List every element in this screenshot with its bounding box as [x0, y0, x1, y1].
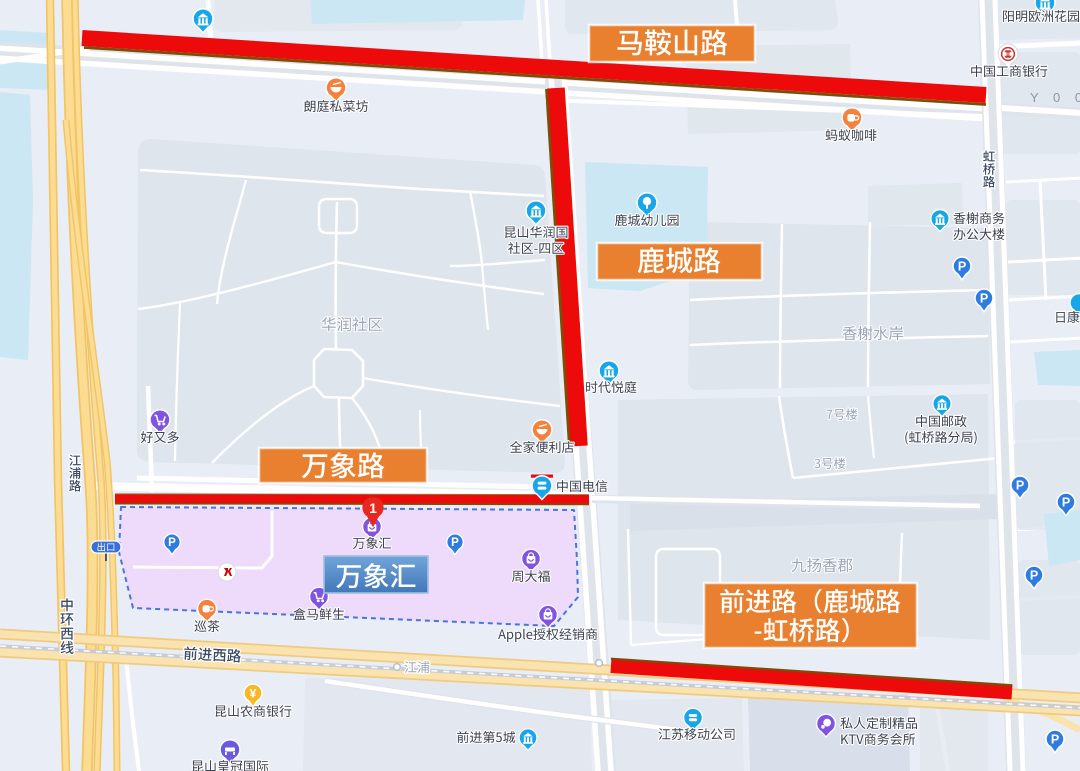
svg-text:P: P: [1062, 496, 1070, 510]
svg-text:P: P: [958, 260, 966, 274]
svg-text:P: P: [1051, 733, 1059, 747]
svg-text:1: 1: [369, 500, 377, 516]
svg-text:P: P: [1030, 569, 1038, 583]
svg-text:P: P: [1016, 479, 1024, 493]
svg-text:P: P: [980, 292, 988, 306]
svg-text:P: P: [168, 537, 176, 549]
svg-text:Y 0 0 1: Y 0 0 1: [1030, 90, 1080, 105]
svg-text:¥: ¥: [250, 686, 257, 700]
svg-text:P: P: [451, 537, 459, 549]
